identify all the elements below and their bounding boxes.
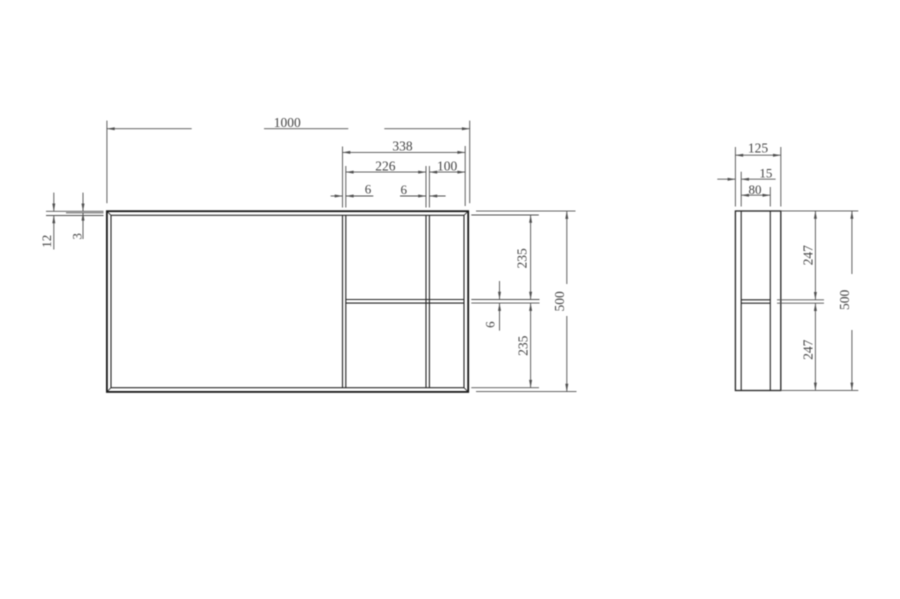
svg-text:15: 15 — [759, 166, 772, 181]
svg-text:1000: 1000 — [274, 115, 301, 130]
svg-text:247: 247 — [801, 245, 816, 266]
svg-text:3: 3 — [69, 233, 84, 240]
svg-text:226: 226 — [375, 159, 396, 174]
svg-text:6: 6 — [365, 182, 372, 197]
svg-text:500: 500 — [837, 290, 852, 311]
svg-text:500: 500 — [552, 291, 567, 312]
svg-text:235: 235 — [516, 335, 531, 356]
svg-text:12: 12 — [39, 235, 54, 248]
svg-text:125: 125 — [748, 141, 769, 156]
svg-text:6: 6 — [401, 182, 408, 197]
svg-text:235: 235 — [514, 248, 529, 269]
svg-text:247: 247 — [801, 339, 816, 360]
svg-text:6: 6 — [482, 321, 497, 328]
svg-text:100: 100 — [437, 159, 458, 174]
svg-text:338: 338 — [392, 139, 413, 154]
svg-text:80: 80 — [749, 182, 762, 197]
